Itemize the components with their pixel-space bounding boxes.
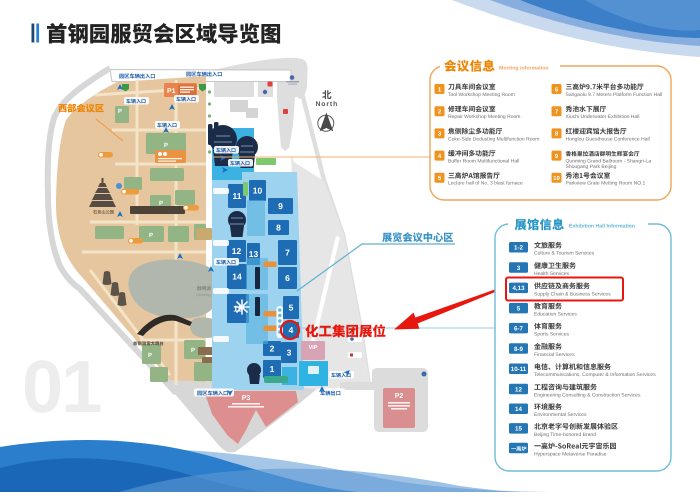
svg-text:Supply Chain & Business Servic: Supply Chain & Business Services xyxy=(534,291,611,297)
svg-text:Coke-Side Dedusting Multifunct: Coke-Side Dedusting Multifunction Room xyxy=(448,136,539,142)
svg-text:Exhibition Hall Information: Exhibition Hall Information xyxy=(569,224,635,230)
svg-text:Financial Services: Financial Services xyxy=(534,352,575,358)
svg-text:5: 5 xyxy=(289,303,294,313)
svg-text:P: P xyxy=(118,108,122,115)
svg-text:Lecture hall of No. 3 blast fu: Lecture hall of No. 3 blast furnace xyxy=(448,181,523,187)
svg-text:12: 12 xyxy=(232,246,242,256)
svg-text:14: 14 xyxy=(515,406,522,413)
svg-text:P: P xyxy=(149,232,153,239)
svg-text:Meeting information: Meeting information xyxy=(499,66,549,72)
svg-text:2: 2 xyxy=(270,344,275,354)
svg-text:P: P xyxy=(164,142,168,149)
svg-text:North: North xyxy=(316,101,339,108)
svg-text:13: 13 xyxy=(249,249,259,259)
svg-text:Beijing Time-honored Brand: Beijing Time-honored Brand xyxy=(534,432,596,438)
svg-text:Engineering Consulting & Const: Engineering Consulting & Construction Se… xyxy=(534,393,641,399)
svg-text:12: 12 xyxy=(515,386,522,393)
svg-text:Xiuchi Underwater Exhibition H: Xiuchi Underwater Exhibition Hall xyxy=(566,114,640,120)
svg-text:5: 5 xyxy=(517,306,521,313)
svg-text:P: P xyxy=(159,200,163,207)
svg-text:4,13: 4,13 xyxy=(512,285,525,292)
svg-text:1-2: 1-2 xyxy=(514,245,524,252)
svg-text:10: 10 xyxy=(253,186,263,196)
svg-text:6-7: 6-7 xyxy=(514,326,524,333)
svg-text:14: 14 xyxy=(232,272,242,282)
svg-text:9: 9 xyxy=(278,201,283,211)
svg-text:P2: P2 xyxy=(395,393,404,400)
svg-text:Tool Workshop Meeting Room: Tool Workshop Meeting Room xyxy=(448,92,515,98)
svg-text:Culture & Tourism Services: Culture & Tourism Services xyxy=(534,251,595,257)
svg-text:8: 8 xyxy=(276,223,281,233)
svg-text:7: 7 xyxy=(285,248,290,258)
svg-text:Education Services: Education Services xyxy=(534,312,577,318)
svg-text:Sangaolu 9.7 Meters Platform F: Sangaolu 9.7 Meters Platform Function Ha… xyxy=(566,92,663,98)
svg-text:P: P xyxy=(148,352,152,359)
svg-text:Telecommunications, Computer &: Telecommunications, Computer & Informati… xyxy=(534,372,656,378)
svg-text:Sports Services: Sports Services xyxy=(534,332,570,338)
svg-text:P: P xyxy=(191,347,195,354)
svg-text:Honglou Guesthouse Conference: Honglou Guesthouse Conference Hall xyxy=(566,136,650,142)
svg-text:1: 1 xyxy=(270,364,275,374)
svg-text:Hyperspace Metaverse Paradise: Hyperspace Metaverse Paradise xyxy=(534,451,607,457)
svg-text:Buffer Room Multifunctional Ha: Buffer Room Multifunctional Hall xyxy=(448,159,519,165)
svg-text:10-11: 10-11 xyxy=(511,366,527,373)
svg-text:8-9: 8-9 xyxy=(514,346,524,353)
svg-text:01: 01 xyxy=(22,345,101,428)
svg-text:3: 3 xyxy=(517,265,521,272)
svg-text:P1: P1 xyxy=(167,88,176,95)
svg-text:Health Services: Health Services xyxy=(534,271,570,277)
svg-text:15: 15 xyxy=(515,426,522,433)
svg-text:VIP: VIP xyxy=(309,345,318,351)
svg-text:Shougang Park Beijing: Shougang Park Beijing xyxy=(566,164,617,170)
svg-text:Environmental Services: Environmental Services xyxy=(534,412,587,418)
svg-text:3: 3 xyxy=(287,348,292,358)
svg-text:Parkview Grate Metting Room NO: Parkview Grate Metting Room NO.1 xyxy=(566,181,646,187)
svg-text:11: 11 xyxy=(233,191,242,201)
svg-text:Repair Workshop Meeting Room: Repair Workshop Meeting Room xyxy=(448,114,520,120)
svg-text:P3: P3 xyxy=(242,395,251,402)
svg-text:6: 6 xyxy=(285,273,290,283)
svg-text:10: 10 xyxy=(553,175,560,182)
svg-text:4: 4 xyxy=(289,325,294,335)
